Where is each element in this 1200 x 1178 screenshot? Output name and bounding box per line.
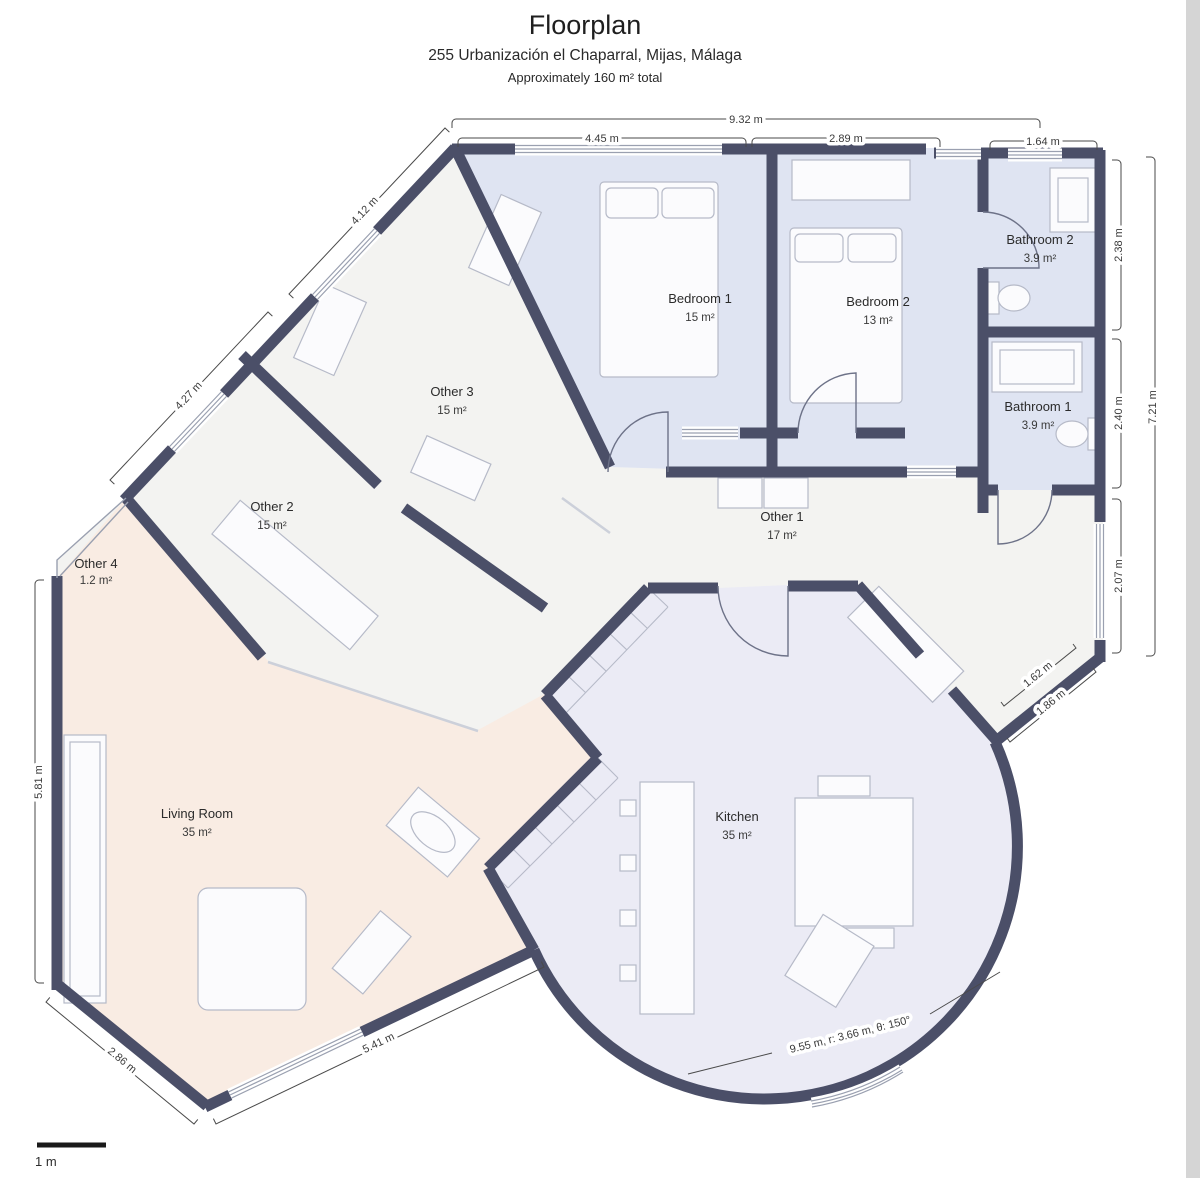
room-area-bathroom-2: 3.9 m² (1024, 253, 1057, 265)
room-area-kitchen: 35 m² (722, 830, 752, 842)
dim-top-total: 9.32 m (729, 114, 763, 126)
room-label-living-room: Living Room (161, 806, 233, 821)
kitchen-stool (620, 910, 636, 926)
other1-closet (718, 478, 762, 508)
bedroom2-dresser (792, 160, 910, 200)
other1-closet (764, 478, 808, 508)
dim-diag-upper: 4.12 m (349, 195, 381, 228)
room-area-bedroom-1: 15 m² (685, 312, 715, 324)
dim-right-b: 2.40 m (1113, 396, 1125, 430)
room-label-other-1: Other 1 (760, 509, 803, 524)
room-label-bedroom-1: Bedroom 1 (668, 291, 732, 306)
room-area-other-3: 15 m² (437, 405, 467, 417)
room-label-other-3: Other 3 (430, 384, 473, 399)
image-edge-strip (1186, 0, 1200, 1178)
room-label-other-2: Other 2 (250, 499, 293, 514)
bedroom2-pillow (848, 234, 896, 262)
bathroom1-toilet (1056, 421, 1088, 447)
living-sofa (198, 888, 306, 1010)
room-area-living-room: 35 m² (182, 827, 212, 839)
kitchen-chair (818, 776, 870, 796)
room-label-other-4: Other 4 (74, 556, 117, 571)
dim-right-a: 2.38 m (1113, 228, 1125, 262)
bedroom1-pillow (662, 188, 714, 218)
kitchen-stool (620, 965, 636, 981)
kitchen-stool (620, 800, 636, 816)
bathroom2-toilet (998, 285, 1030, 311)
room-label-kitchen: Kitchen (715, 809, 758, 824)
scale-bar-label: 1 m (35, 1154, 57, 1169)
kitchen-stool (620, 855, 636, 871)
bathroom1-sink-basin (1000, 350, 1074, 384)
bedroom2-pillow (795, 234, 843, 262)
room-label-bathroom-2: Bathroom 2 (1006, 232, 1073, 247)
dim-top-right: 1.64 m (1026, 136, 1060, 148)
dim-top-left: 4.45 m (585, 133, 619, 145)
header: Floorplan 255 Urbanización el Chaparral,… (428, 10, 742, 85)
floorplan-canvas: Floorplan 255 Urbanización el Chaparral,… (0, 0, 1200, 1178)
page-total-note: Approximately 160 m² total (508, 70, 663, 85)
dim-left-side: 5.81 m (33, 765, 45, 799)
room-area-other-1: 17 m² (767, 530, 797, 542)
room-area-bedroom-2: 13 m² (863, 315, 893, 327)
dim-top-mid: 2.89 m (829, 133, 863, 145)
living-media-shelf (70, 742, 100, 996)
room-label-bedroom-2: Bedroom 2 (846, 294, 910, 309)
floorplan-page: Floorplan 255 Urbanización el Chaparral,… (0, 0, 1200, 1178)
room-area-bathroom-1: 3.9 m² (1022, 420, 1055, 432)
kitchen-table (795, 798, 913, 926)
page-subtitle: 255 Urbanización el Chaparral, Mijas, Má… (428, 47, 742, 64)
dim-right-c: 2.07 m (1113, 559, 1125, 593)
room-area-other-4: 1.2 m² (80, 575, 113, 587)
bathroom2-sink-basin (1058, 178, 1088, 222)
bathroom2-toilet-tank (987, 282, 999, 314)
kitchen-island (640, 782, 694, 1014)
room-label-bathroom-1: Bathroom 1 (1004, 399, 1071, 414)
bedroom1-pillow (606, 188, 658, 218)
dim-right-total: 7.21 m (1147, 390, 1159, 424)
scale-bar: 1 m (35, 1145, 106, 1169)
room-area-other-2: 15 m² (257, 520, 287, 532)
page-title: Floorplan (529, 10, 642, 40)
dim-diag-lower: 4.27 m (173, 380, 205, 413)
